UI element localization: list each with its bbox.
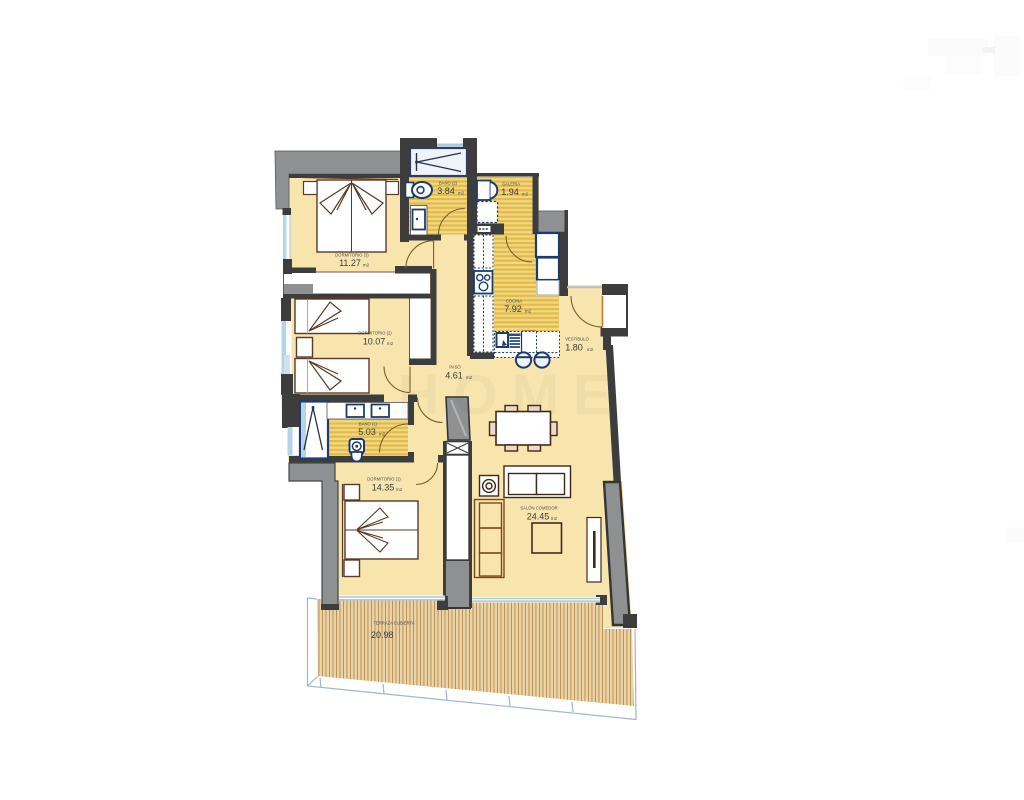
svg-text:24.45: 24.45 <box>527 512 550 522</box>
svg-text:DORMITORIO (2): DORMITORIO (2) <box>358 331 392 336</box>
svg-text:m2: m2 <box>458 191 465 196</box>
svg-text:20.98: 20.98 <box>371 630 394 640</box>
svg-text:3.84: 3.84 <box>437 186 455 196</box>
svg-text:BAÑO (1): BAÑO (1) <box>359 422 378 427</box>
svg-text:m2: m2 <box>363 263 370 268</box>
svg-text:7.92: 7.92 <box>504 304 522 314</box>
svg-text:m2: m2 <box>525 309 532 314</box>
svg-text:BAÑO (2): BAÑO (2) <box>439 181 458 186</box>
svg-text:HOME: HOME <box>398 363 625 427</box>
svg-text:DORMITORIO (3): DORMITORIO (3) <box>335 253 369 258</box>
svg-text:COCINA: COCINA <box>506 299 522 304</box>
svg-text:TERRAZA CUBIERTA: TERRAZA CUBIERTA <box>373 621 414 626</box>
svg-text:14.35: 14.35 <box>372 483 395 493</box>
svg-text:m2: m2 <box>551 516 558 521</box>
svg-text:10.07: 10.07 <box>363 337 386 347</box>
svg-text:5.03: 5.03 <box>358 427 376 437</box>
svg-text:11.27: 11.27 <box>339 258 361 268</box>
svg-text:VESTÍBULO: VESTÍBULO <box>565 337 589 342</box>
svg-text:m2: m2 <box>387 341 394 346</box>
svg-text:GALERÍA: GALERÍA <box>502 182 520 187</box>
svg-text:m2: m2 <box>522 192 529 197</box>
svg-text:1.80: 1.80 <box>565 343 583 353</box>
svg-text:m2: m2 <box>396 487 403 492</box>
svg-text:DORMITORIO (1): DORMITORIO (1) <box>367 477 401 482</box>
svg-text:m2: m2 <box>587 347 594 352</box>
svg-text:SALÓN COMEDOR: SALÓN COMEDOR <box>520 506 557 511</box>
svg-text:m2: m2 <box>379 432 386 437</box>
svg-text:1.94: 1.94 <box>501 187 519 197</box>
